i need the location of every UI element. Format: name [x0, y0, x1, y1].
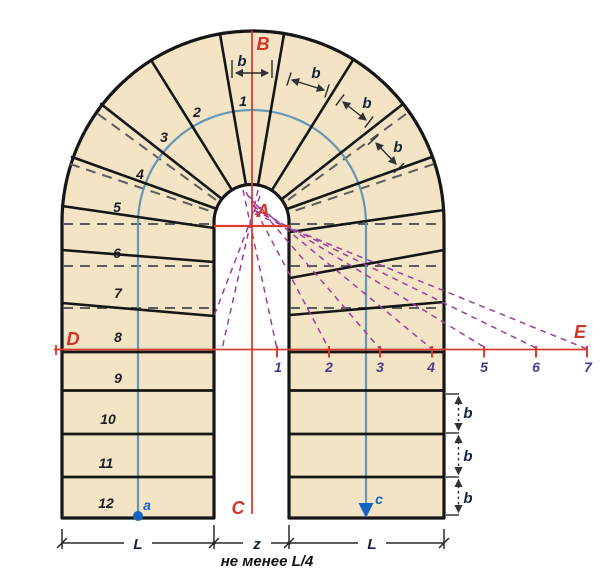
axis-tick-7: 7: [584, 359, 593, 375]
dim-label-L-left: L: [133, 536, 142, 553]
dim-label-b-step3: b: [362, 95, 371, 112]
step-number-3: 3: [160, 129, 168, 145]
axis-tick-5: 5: [480, 359, 488, 375]
step-number-12: 12: [98, 495, 114, 511]
dim-label-L-right: L: [367, 536, 376, 553]
step-number-9: 9: [114, 370, 122, 386]
axis-tick-6: 6: [532, 359, 540, 375]
step-number-11: 11: [99, 455, 114, 471]
staircase-diagram: B A C D E a c 1 2 3 4 5 6 7 8 9 10 11 12…: [0, 0, 600, 582]
step-number-5: 5: [113, 199, 121, 215]
step-number-4: 4: [135, 166, 144, 182]
dim-label-b-right-1: b: [463, 405, 472, 422]
step-number-6: 6: [113, 245, 121, 261]
point-label-D: D: [67, 329, 80, 349]
walkline-start-dot: [133, 511, 143, 521]
axis-tick-3: 3: [376, 359, 384, 375]
staircase-diagram-page: B A C D E a c 1 2 3 4 5 6 7 8 9 10 11 12…: [0, 0, 600, 582]
step-number-1: 1: [239, 93, 247, 109]
dim-label-b-step1: b: [237, 53, 246, 70]
dim-label-b-step2: b: [311, 65, 320, 82]
axis-tick-2: 2: [324, 359, 333, 375]
dim-b-right-chain: [446, 394, 459, 515]
step-number-2: 2: [192, 104, 201, 120]
point-label-E: E: [574, 322, 587, 342]
dim-label-b-right-3: b: [463, 490, 472, 507]
dim-label-b-step4: b: [393, 139, 402, 156]
axis-tick-1: 1: [274, 359, 282, 375]
axis-tick-4: 4: [426, 359, 435, 375]
point-label-A: A: [256, 201, 270, 221]
step-number-7: 7: [114, 285, 123, 301]
step-number-8: 8: [114, 329, 122, 345]
step-number-10: 10: [100, 411, 116, 427]
dim-note-min-quarter: не менее L/4: [221, 553, 314, 570]
walkline-start-label: a: [143, 497, 151, 513]
point-label-B: B: [257, 34, 270, 54]
point-label-C: C: [232, 498, 246, 518]
dim-label-z: z: [252, 536, 261, 553]
walkline-end-label: c: [375, 491, 383, 507]
dim-label-b-right-2: b: [463, 448, 472, 465]
